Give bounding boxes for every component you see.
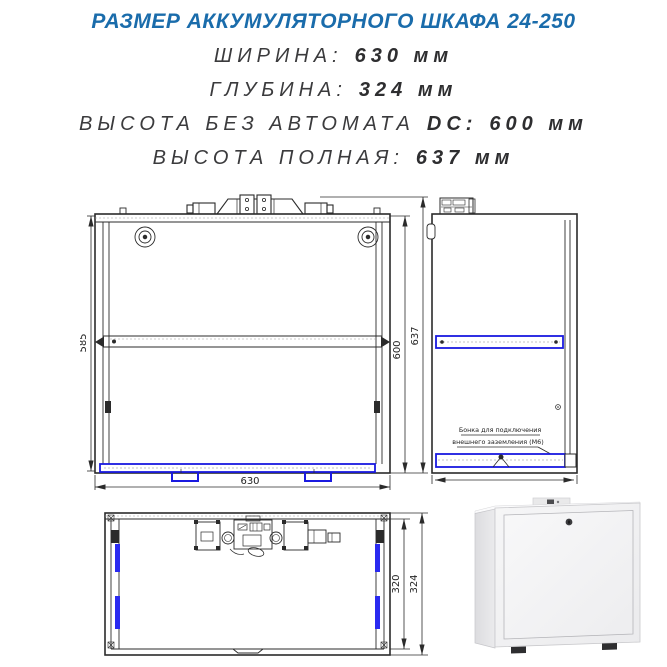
spec-width-label: ШИРИНА: — [214, 45, 343, 68]
photo-side-face — [475, 509, 495, 648]
spec-width-value: 630 мм — [355, 45, 454, 68]
top-cabinet-outline — [105, 513, 390, 655]
dim-label-585: 585 — [80, 333, 89, 352]
page: РАЗМЕР АККУМУЛЯТОРНОГО ШКАФА 24-250 ШИРИ… — [0, 0, 667, 667]
spec-depth-value: 324 мм — [359, 79, 458, 102]
side-bottom-dim — [432, 475, 577, 484]
side-middle-band — [436, 336, 563, 348]
dim-label-600: 600 — [392, 340, 403, 359]
spec-height-no-breaker: ВЫСОТА БЕЗ АВТОМАТА DC: 600 мм — [0, 113, 667, 136]
dim-inner-height: 585 — [80, 216, 95, 471]
bottom-bar — [100, 464, 375, 481]
spec-depth: ГЛУБИНА: 324 мм — [0, 79, 667, 102]
dim-body-height: 600 — [390, 216, 428, 473]
lock-icon — [566, 519, 573, 526]
photo-foot-left — [511, 647, 526, 654]
spec-height-full-value: 637 мм — [416, 147, 515, 170]
side-bottom-band — [436, 454, 576, 467]
side-view-drawing: Бонка для подключения внешнего заземлени… — [425, 188, 590, 503]
front-cabinet-outline — [95, 195, 390, 481]
cabinet-photo — [452, 495, 667, 667]
side-cabinet-outline: Бонка для подключения внешнего заземлени… — [427, 198, 577, 473]
top-view-drawing: 320 324 — [80, 500, 440, 667]
dim-inner-depth: 320 — [390, 519, 410, 649]
spec-height-no-breaker-value: 600 мм — [489, 113, 588, 136]
annotation-line1: Бонка для подключения — [459, 426, 542, 434]
dim-label-320: 320 — [391, 574, 402, 593]
spec-height-no-breaker-label: ВЫСОТА БЕЗ АВТОМАТА — [79, 113, 415, 136]
annotation-line2: внешнего заземления (М6) — [452, 438, 543, 446]
spec-depth-label: ГЛУБИНА: — [210, 79, 347, 102]
spec-height-full: ВЫСОТА ПОЛНАЯ: 637 мм — [0, 147, 667, 170]
dim-label-637: 637 — [410, 326, 421, 345]
dim-label-630: 630 — [240, 476, 259, 487]
spec-height-full-label: ВЫСОТА ПОЛНАЯ: — [153, 147, 404, 170]
spec-height-no-breaker-mid: DC: — [427, 113, 478, 136]
dc-breaker-side — [440, 198, 475, 214]
dim-label-324: 324 — [409, 574, 420, 593]
photo-foot-right — [602, 643, 617, 650]
header: РАЗМЕР АККУМУЛЯТОРНОГО ШКАФА 24-250 ШИРИ… — [0, 0, 667, 181]
dc-breaker-front — [187, 195, 333, 214]
photo-door-panel — [504, 511, 633, 640]
front-view-drawing: 585 630 600 637 — [80, 188, 430, 503]
dim-width: 630 — [95, 475, 390, 490]
spec-width: ШИРИНА: 630 мм — [0, 45, 667, 68]
page-title: РАЗМЕР АККУМУЛЯТОРНОГО ШКАФА 24-250 — [0, 10, 667, 34]
